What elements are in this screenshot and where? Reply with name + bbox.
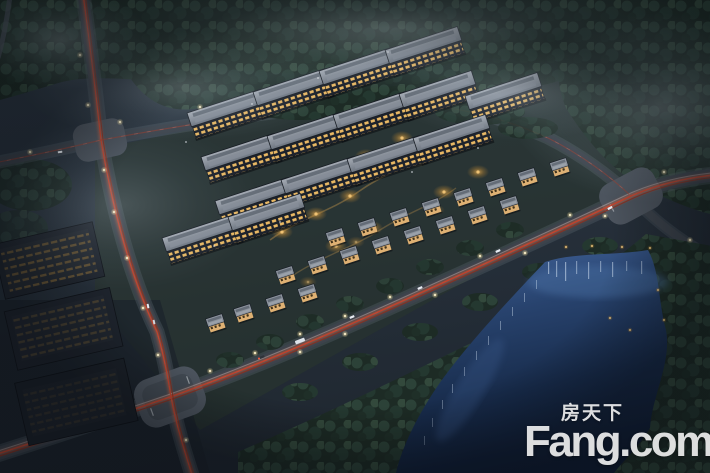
vignette [0, 0, 710, 473]
aerial-night-rendering [0, 0, 710, 473]
screenshot-root: 房天下 Fang.com [0, 0, 710, 473]
